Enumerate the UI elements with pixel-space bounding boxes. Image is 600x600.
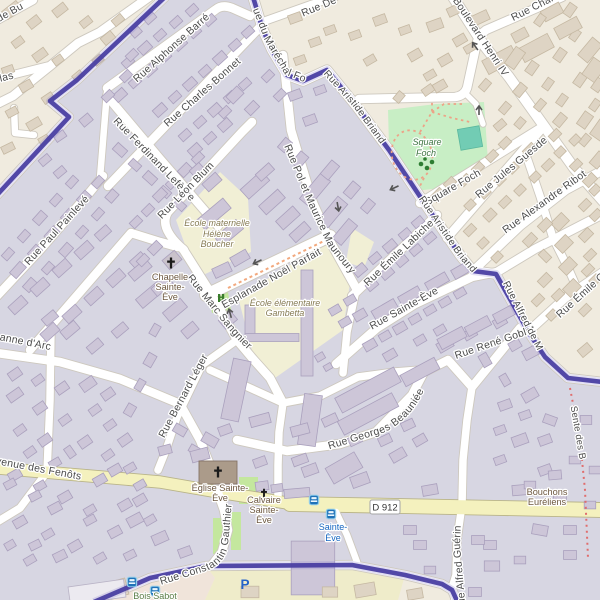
svg-text:École élémentaire: École élémentaire (250, 298, 321, 308)
svg-text:P: P (240, 577, 249, 592)
svg-text:Euréliens: Euréliens (528, 497, 567, 507)
svg-text:Ève: Ève (162, 292, 178, 302)
svg-text:Foch: Foch (416, 148, 436, 158)
svg-text:Ève: Ève (325, 533, 341, 543)
svg-text:Sainte-: Sainte- (249, 505, 278, 515)
svg-text:Bois Sabot: Bois Sabot (133, 591, 177, 600)
svg-text:Bouchons: Bouchons (527, 487, 568, 497)
svg-text:Square: Square (412, 137, 441, 147)
svg-text:Sainte-: Sainte- (155, 282, 184, 292)
svg-text:École maternelle: École maternelle (184, 218, 250, 228)
svg-text:D 912: D 912 (372, 503, 397, 514)
svg-text:Hélène: Hélène (203, 229, 231, 239)
svg-text:Boucher: Boucher (201, 239, 235, 249)
svg-text:Ève: Ève (256, 515, 272, 525)
svg-text:Chapelle: Chapelle (152, 272, 188, 282)
svg-text:Sainte-: Sainte- (319, 522, 348, 532)
svg-text:Calvaire: Calvaire (247, 495, 281, 505)
svg-text:Ève: Ève (212, 493, 228, 503)
svg-text:Église Sainte-: Église Sainte- (192, 483, 249, 493)
svg-text:Gambetta: Gambetta (266, 308, 305, 318)
